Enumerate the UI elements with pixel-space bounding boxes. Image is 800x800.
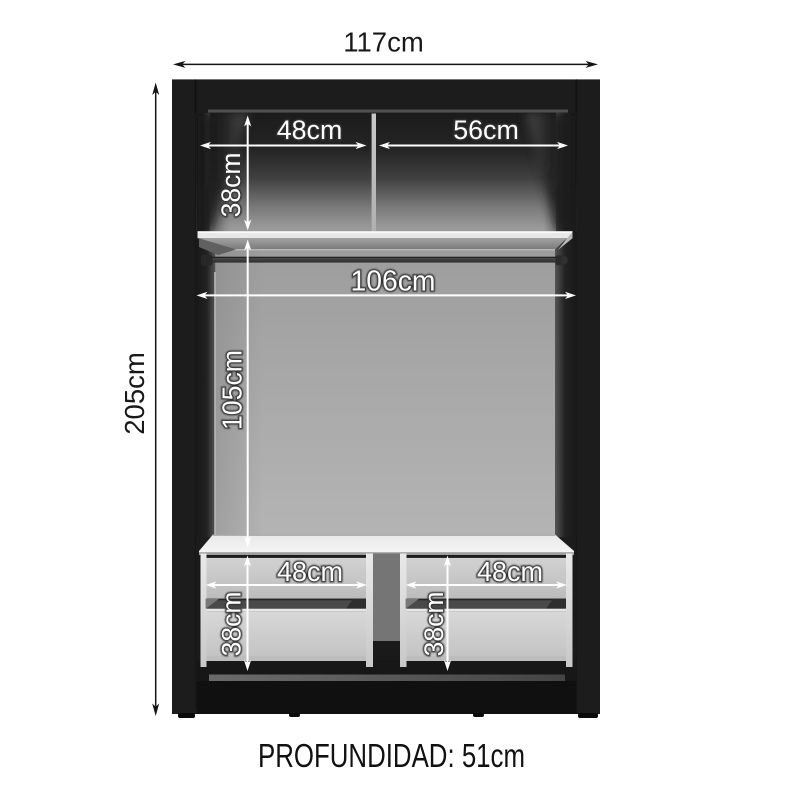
svg-text:38cm: 38cm xyxy=(419,592,449,657)
svg-text:38cm: 38cm xyxy=(217,592,247,657)
svg-text:205cm: 205cm xyxy=(119,352,150,435)
svg-text:38cm: 38cm xyxy=(216,153,246,218)
svg-text:117cm: 117cm xyxy=(343,27,424,58)
svg-text:48cm: 48cm xyxy=(477,556,543,587)
svg-text:106cm: 106cm xyxy=(351,266,436,298)
svg-text:PROFUNDIDAD: 51cm: PROFUNDIDAD: 51cm xyxy=(258,737,525,774)
svg-text:56cm: 56cm xyxy=(453,115,519,145)
svg-text:48cm: 48cm xyxy=(277,556,343,587)
svg-text:48cm: 48cm xyxy=(277,115,343,145)
svg-text:105cm: 105cm xyxy=(217,350,248,430)
